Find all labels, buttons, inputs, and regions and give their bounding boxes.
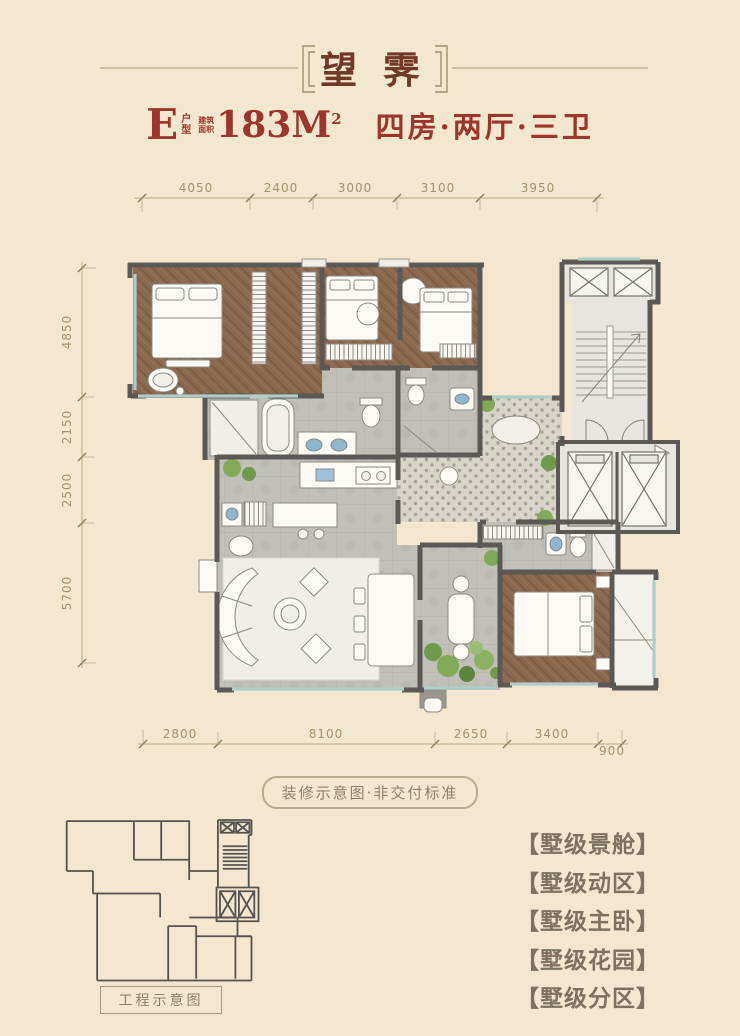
bedroom2-wardrobe [326, 344, 392, 360]
svg-text:5700: 5700 [60, 576, 74, 611]
master-bed [152, 284, 222, 367]
svg-text:8100: 8100 [309, 727, 344, 741]
main-floorplan [128, 259, 678, 712]
svg-text:2500: 2500 [60, 473, 74, 508]
feature-item: 【墅级分区】 [498, 980, 678, 1019]
kitchen-island [273, 503, 337, 527]
svg-text:4050: 4050 [179, 181, 214, 195]
hallway-floor [322, 368, 400, 398]
floorplan-poster: 4050 2400 3000 3100 3950 4850 2150 2500 … [0, 0, 740, 1036]
walk-in-closet [302, 272, 316, 364]
walk-in-closet [252, 272, 266, 364]
unit-letter: E [146, 104, 178, 146]
feature-item: 【墅级景舱】 [498, 826, 678, 865]
svg-text:2400: 2400 [264, 181, 299, 195]
dimension-lines-left: 4850 2150 2500 5700 [60, 262, 96, 668]
layout-text: 四房·两厅·三卫 [376, 104, 594, 146]
feature-list: 【墅级景舱】 【墅级动区】 【墅级主卧】 【墅级花园】 【墅级分区】 [498, 826, 678, 1019]
svg-text:3400: 3400 [535, 727, 570, 741]
svg-text:3950: 3950 [521, 181, 556, 195]
dimension-lines-top: 4050 2400 3000 3100 3950 [134, 181, 604, 212]
svg-text:2800: 2800 [163, 727, 198, 741]
subtitle: E 户型 建筑面积 183M2 四房·两厅·三卫 [0, 104, 740, 146]
dining-table [368, 574, 414, 666]
feature-item: 【墅级动区】 [498, 865, 678, 904]
closet-room-floor [612, 572, 656, 685]
unit-type-small: 户型 [181, 114, 192, 137]
area-label-small: 建筑面积 [198, 116, 215, 134]
side-door-nook [199, 560, 217, 592]
feature-item: 【墅级花园】 [498, 942, 678, 981]
feature-item: 【墅级主卧】 [498, 903, 678, 942]
svg-text:3000: 3000 [338, 181, 373, 195]
svg-text:900: 900 [599, 744, 625, 758]
bedroom2-chair [357, 303, 379, 325]
dimension-lines-bottom: 2800 8100 2650 3400 900 [138, 727, 628, 758]
svg-text:4850: 4850 [60, 315, 74, 350]
svg-text:2150: 2150 [60, 410, 74, 445]
mini-plan-label: 工程示意图 [100, 986, 222, 1014]
svg-text:3100: 3100 [421, 181, 456, 195]
svg-text:2650: 2650 [454, 727, 489, 741]
bedroom3-wardrobe [440, 344, 476, 358]
area-value: 183M2 [216, 107, 341, 143]
outdoor-unit [420, 690, 446, 712]
bedroom3-bed [420, 288, 472, 352]
page-title: 望霁 [0, 40, 740, 94]
disclaimer-note: 装修示意图·非交付标准 [0, 776, 740, 809]
mini-engineering-plan [67, 820, 259, 981]
